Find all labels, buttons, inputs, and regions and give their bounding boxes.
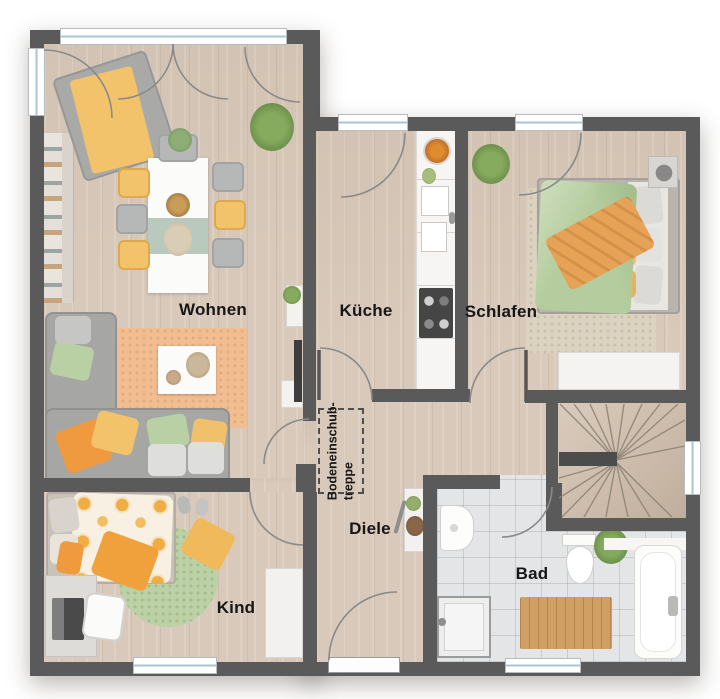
wall-kitchen-bottom (372, 389, 470, 402)
floor-plan: Bodeneinschub- treppe Wohnen Küche Schla… (0, 0, 720, 699)
bath-mat-wood (520, 597, 612, 649)
staircase-floor (558, 403, 686, 518)
herbs (422, 168, 436, 184)
window (338, 114, 408, 131)
wall-living-right-outer (303, 30, 317, 131)
wall-stair-bottom (546, 518, 686, 531)
coffee-table-decor (186, 352, 210, 378)
dining-chair (118, 168, 150, 198)
bed-pillow (632, 265, 663, 305)
stove-cooktop (419, 288, 453, 338)
table-decor-plant (164, 222, 192, 256)
sofa-seat-cushion (148, 444, 186, 476)
plant (406, 496, 421, 511)
kitchen-counter (416, 131, 456, 391)
entrance-door (328, 657, 400, 673)
wall-corner-stub (296, 464, 316, 492)
room-label-diele: Diele (325, 519, 415, 539)
wall-bath-left (423, 475, 437, 662)
bathtub-faucet (668, 596, 678, 616)
room-label-wohnen: Wohnen (158, 300, 268, 320)
attic-stairs-outline: Bodeneinschub- treppe (318, 408, 364, 494)
plant (472, 144, 510, 184)
wall-kitchen-bedroom (455, 131, 468, 391)
room-label-kueche: Küche (322, 301, 410, 321)
plant (168, 128, 192, 152)
sofa-seat-cushion (188, 442, 224, 474)
wall-left (30, 30, 44, 676)
dining-chair (212, 238, 244, 268)
desk-chair (81, 591, 127, 642)
dining-chair (212, 162, 244, 192)
dining-chair (116, 204, 148, 234)
wall-living-kind (44, 478, 250, 492)
room-label-schlafen: Schlafen (455, 302, 547, 322)
wall-bath-stub (546, 483, 562, 528)
window (60, 28, 287, 45)
washbasin-drain (450, 524, 458, 532)
wall-bedroom-bottom (525, 390, 686, 403)
kitchen-sink (421, 222, 447, 252)
room-label-kind: Kind (191, 598, 281, 618)
nightstand-speaker (648, 156, 678, 188)
toilet-tank (562, 534, 596, 546)
window (133, 657, 217, 674)
kids-pillow (48, 496, 80, 534)
sofa-pillow (55, 316, 91, 344)
window (515, 114, 583, 131)
plant (250, 103, 294, 151)
room-label-bad: Bad (502, 564, 562, 584)
plant (283, 286, 301, 304)
dining-chair (214, 200, 246, 230)
coffee-table-decor (166, 370, 181, 385)
tv-screen (294, 340, 302, 402)
window (684, 441, 701, 495)
sideboard (558, 352, 680, 390)
wall-kind-right (303, 492, 317, 662)
shower-head (438, 618, 446, 626)
wall-living-kitchen (303, 131, 316, 421)
dining-chair (118, 240, 150, 270)
table-decor-bowl (166, 193, 190, 217)
shower-inner (444, 603, 484, 651)
kitchen-sink (421, 186, 449, 216)
window (28, 48, 45, 116)
laptop (52, 598, 84, 640)
bookshelf (44, 133, 74, 303)
window (505, 658, 581, 673)
attic-stairs-label: Bodeneinschub- treppe (325, 402, 358, 500)
wall-bath-top (423, 475, 500, 489)
wall-right (686, 117, 700, 676)
fruit-bowl (423, 137, 451, 165)
